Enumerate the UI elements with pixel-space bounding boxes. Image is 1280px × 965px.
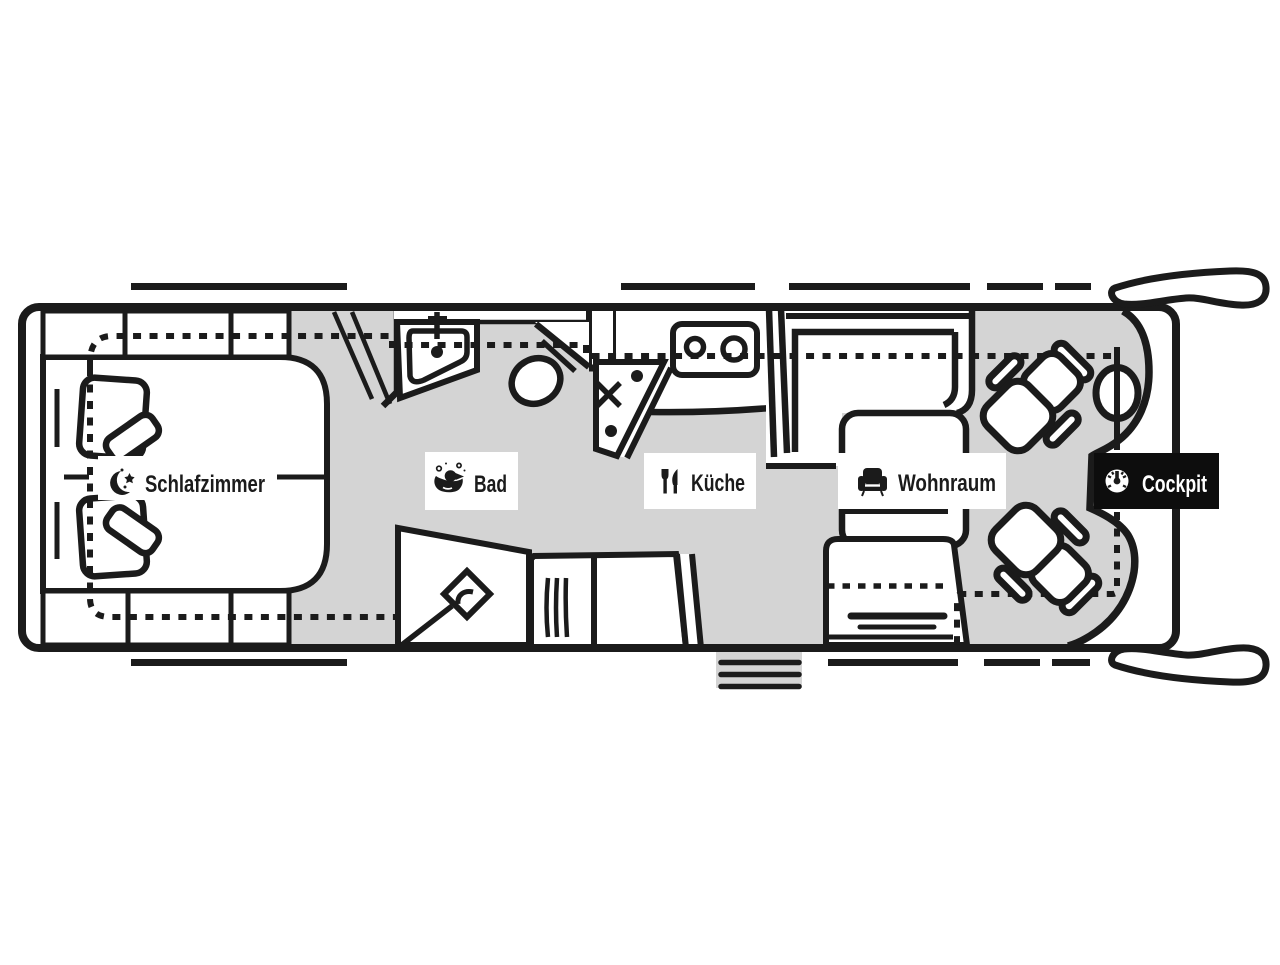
svg-text:Schlafzimmer: Schlafzimmer bbox=[145, 471, 265, 498]
svg-text:Bad: Bad bbox=[474, 471, 507, 498]
svg-text:Wohnraum: Wohnraum bbox=[898, 470, 996, 497]
svg-text:Küche: Küche bbox=[691, 470, 745, 497]
svg-text:Cockpit: Cockpit bbox=[1142, 471, 1207, 498]
